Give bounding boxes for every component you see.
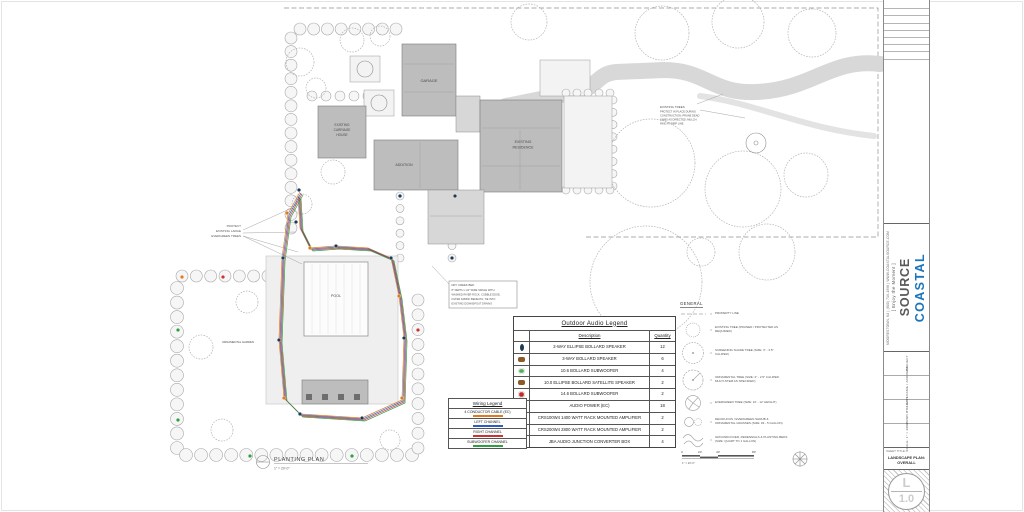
audio-legend-quantity: 2 <box>649 425 675 436</box>
wiring-label: LEFT CHANNEL <box>474 420 500 424</box>
wire-color-swatch <box>473 445 503 446</box>
audio-legend-description: JBA AUDIO JUNCTION CONVERTER BOX <box>529 436 649 447</box>
wire-color-swatch <box>473 435 503 436</box>
wiring-legend: Wiring Legend 4 CONDUCTOR CABLE (EC) LEF… <box>448 398 527 449</box>
wire-color-swatch <box>473 415 503 416</box>
audio-legend-description: 14.6 BOLLARD SUBWOOFER <box>529 389 649 400</box>
field-scale: SCALE: 1" = 20'-0" <box>884 424 929 448</box>
audio-legend-quantity: 12 <box>649 342 675 353</box>
svg-text:EXISTING DOWNSPOUT DRAINS: EXISTING DOWNSPOUT DRAINS <box>452 302 493 306</box>
brand-contact: MOORESTOWN, NJ | (800) 719-1996 | WWW.CO… <box>886 231 890 345</box>
project-info-box <box>884 52 929 224</box>
plan-title: PLANTING PLAN <box>274 457 324 463</box>
general-legend: GENERAL = PROPERTY LINE = EXISTING TREE … <box>680 292 788 452</box>
wiring-legend-row: LEFT CHANNEL <box>449 418 526 428</box>
sheet-number: 1.0 <box>899 491 914 508</box>
brand-tagline: [ Enjoy the Moment ] <box>891 263 896 311</box>
breezeway <box>456 96 480 132</box>
audio-legend-description: AUDIO POWER (EC) <box>529 401 649 412</box>
svg-text:8" DEPTH x 24" WIDE SWALE WITH: 8" DEPTH x 24" WIDE SWALE WITH <box>452 288 495 292</box>
audio-legend-quantity: 4 <box>649 436 675 447</box>
carriage-house-label: CARRIAGE <box>334 128 351 132</box>
brand-logo: MOORESTOWN, NJ | (800) 719-1996 | WWW.CO… <box>884 224 929 352</box>
garage-label: GARAGE <box>420 78 437 83</box>
audio-legend-row: AUDIO POWER (EC) 18 <box>514 400 675 412</box>
wiring-legend-row: SUBWOOFER CHANNEL <box>449 438 526 448</box>
audio-legend-description: 10.0 ELLIPSE BOLLARD SATELLITE SPEAKER <box>529 377 649 388</box>
groundcover-symbol <box>680 431 707 449</box>
garden-path <box>700 96 874 136</box>
audio-legend-quantity: 2 <box>649 377 675 388</box>
audio-legend-description: 3-WAY BOLLARD SPEAKER <box>529 354 649 365</box>
wiring-label: RIGHT CHANNEL <box>473 430 502 434</box>
sheet-title-box: SHEET TITLE: LANDSCAPE PLAN: OVERALL <box>884 448 929 470</box>
audio-legend-description: CRS100W4 1400 WATT RACK MOUNTED AMPLIFIE… <box>529 413 649 424</box>
residence-label: RESIDENCE <box>513 146 535 150</box>
note-dry-creek: DRY CREEK BED 8" DEPTH x 24" WIDE SWALE … <box>432 266 517 308</box>
sheet-number-badge: L 1.0 <box>884 470 929 512</box>
general-legend-row: = EVERGREEN TREE (SIZE: 10' - 12' HEIGHT… <box>680 394 788 412</box>
svg-text:PROTECT IN PLACE DURING: PROTECT IN PLACE DURING <box>660 110 696 114</box>
wiring-legend-row: 4 CONDUCTOR CABLE (EC) <box>449 408 526 418</box>
sheet-letter: L <box>903 474 911 491</box>
audio-legend-row: 10.0 ELLIPSE BOLLARD SATELLITE SPEAKER 2 <box>514 376 675 388</box>
east-terrace <box>564 96 612 188</box>
wiring-legend-title: Wiring Legend <box>449 399 526 408</box>
pool-area <box>266 256 398 404</box>
audio-legend-title: Outdoor Audio Legend <box>514 317 675 330</box>
audio-legend-quantity: 4 <box>649 366 675 377</box>
audio-legend-row: CRS200W4 2800 WATT RACK MOUNTED AMPLIFIE… <box>514 424 675 436</box>
brand-name-primary: COASTAL <box>913 253 927 322</box>
audio-legend-row: 2-WAY ELLIPSE BOLLARD SPEAKER 12 <box>514 341 675 353</box>
bollard-subwoofer-14-icon <box>518 391 525 398</box>
brand-name-secondary: SOURCE <box>898 258 912 316</box>
audio-legend-quantity: 2 <box>649 389 675 400</box>
svg-text:EXISTING LARGE: EXISTING LARGE <box>216 229 241 233</box>
carriage-house <box>318 106 366 158</box>
ornamental-tree-symbol <box>680 368 707 392</box>
pool-label: POOL <box>331 294 341 298</box>
sheet-title: LANDSCAPE PLAN: OVERALL <box>886 455 927 465</box>
svg-text:CONSTRUCTION; PRUNE DEAD: CONSTRUCTION; PRUNE DEAD <box>660 114 699 118</box>
pool-cabana <box>302 380 368 404</box>
property-line-symbol <box>680 310 707 318</box>
svg-text:EXISTING TREES: EXISTING TREES <box>660 105 685 109</box>
ellipse-bollard-satellite-icon <box>518 380 525 385</box>
audio-legend-row: CRS100W4 1400 WATT RACK MOUNTED AMPLIFIE… <box>514 412 675 424</box>
evergreen-tree-symbol <box>680 394 707 412</box>
general-legend-row: = EXISTING TREE (PRUNED / PROTECTED AS R… <box>680 321 788 339</box>
title-block: MOORESTOWN, NJ | (800) 719-1996 | WWW.CO… <box>883 0 930 512</box>
general-legend-title: GENERAL <box>680 301 703 308</box>
svg-text:PROTECT: PROTECT <box>227 224 242 228</box>
bollard-subwoofer-10-icon <box>518 368 525 375</box>
svg-text:WASHED RIVER ROCK, COBBLE EDGE: WASHED RIVER ROCK, COBBLE EDGE, <box>452 293 501 297</box>
audio-legend-row: 3-WAY BOLLARD SPEAKER 6 <box>514 353 675 365</box>
scale-bar: 0 20' 40' 80' 1" = 20'-0" <box>681 450 756 465</box>
general-legend-row: = DECIDUOUS / EVERGREEN SHRUB & ORNAMENT… <box>680 415 788 429</box>
residence-label: EXISTING <box>515 140 532 144</box>
audio-legend-row: JBA AUDIO JUNCTION CONVERTER BOX 4 <box>514 435 675 447</box>
svg-text:1" = 20'-0": 1" = 20'-0" <box>682 461 695 465</box>
garden-label: ORNAMENTAL GARDEN <box>222 340 254 344</box>
3way-bollard-speaker-icon <box>518 357 525 362</box>
audio-legend-quantity: 6 <box>649 354 675 365</box>
carriage-house-label: EXISTING <box>335 123 350 127</box>
audio-legend-header: Description Quantity <box>514 330 675 341</box>
carriage-house-label: HOUSE <box>336 133 347 137</box>
addition <box>374 140 458 190</box>
shrub-symbol <box>680 415 707 429</box>
upper-patio <box>350 56 380 82</box>
audio-legend-quantity: 2 <box>649 413 675 424</box>
description-column-header: Description <box>529 331 649 341</box>
addition-label: ADDITION <box>395 163 413 167</box>
sheet-title-label: SHEET TITLE: <box>886 449 927 453</box>
audio-legend-row: 10.6 BOLLARD SUBWOOFER 4 <box>514 365 675 377</box>
existing-tree-symbol <box>680 321 707 339</box>
quantity-column-header: Quantity <box>649 331 675 341</box>
shade-tree-symbol <box>680 341 707 365</box>
sheet-number-circle: L 1.0 <box>888 473 925 510</box>
revision-table <box>884 2 929 52</box>
garden-ornament <box>746 133 766 153</box>
svg-text:FILTER FABRIC BENEATH; TIE INT: FILTER FABRIC BENEATH; TIE INTO <box>452 297 496 301</box>
title-block-fields: PROJECT CLIENT NAME / ADDRESS DRAWN BY /… <box>884 352 929 448</box>
wiring-legend-row: RIGHT CHANNEL <box>449 428 526 438</box>
general-legend-row: = PROPERTY LINE <box>680 310 788 318</box>
audio-legend-description: CRS200W4 2800 WATT RACK MOUNTED AMPLIFIE… <box>529 425 649 436</box>
wiring-label: SUBWOOFER CHANNEL <box>467 440 508 444</box>
svg-text:DRY CREEK BED: DRY CREEK BED <box>452 283 475 287</box>
wire-color-swatch <box>473 425 503 426</box>
outdoor-audio-legend: Outdoor Audio Legend Description Quantit… <box>513 316 676 448</box>
svg-text:RING AT DRIP LINE: RING AT DRIP LINE <box>660 122 684 126</box>
plan-scale: 1" = 20'-0" <box>274 467 290 471</box>
south-wing <box>428 190 484 244</box>
audio-legend-description: 10.6 BOLLARD SUBWOOFER <box>529 366 649 377</box>
north-arrow-icon <box>793 451 808 467</box>
2way-ellipse-bollard-speaker-icon <box>520 344 524 351</box>
audio-legend-quantity: 18 <box>649 401 675 412</box>
audio-legend-row: 14.6 BOLLARD SUBWOOFER 2 <box>514 388 675 400</box>
svg-text:EVERGREEN TREES: EVERGREEN TREES <box>211 234 241 238</box>
audio-legend-description: 2-WAY ELLIPSE BOLLARD SPEAKER <box>529 342 649 353</box>
wiring-label: 4 CONDUCTOR CABLE (EC) <box>464 410 510 414</box>
general-legend-row: = GROUNDCOVER, PERENNIALS & PLANTING BED… <box>680 431 788 449</box>
lower-patio <box>364 90 394 116</box>
general-legend-row: = SCREENING SHADE TREE (SIZE: 3" - 3.5" … <box>680 341 788 365</box>
svg-text:LIMBS AS DIRECTED; MULCH: LIMBS AS DIRECTED; MULCH <box>660 118 697 122</box>
drawing-sheet: GARAGE ADDITION EXISTING RESIDENCE EXIST… <box>0 0 1024 512</box>
general-legend-row: = ORNAMENTAL TREE (SIZE: 2" - 2.5" CALIP… <box>680 368 788 392</box>
